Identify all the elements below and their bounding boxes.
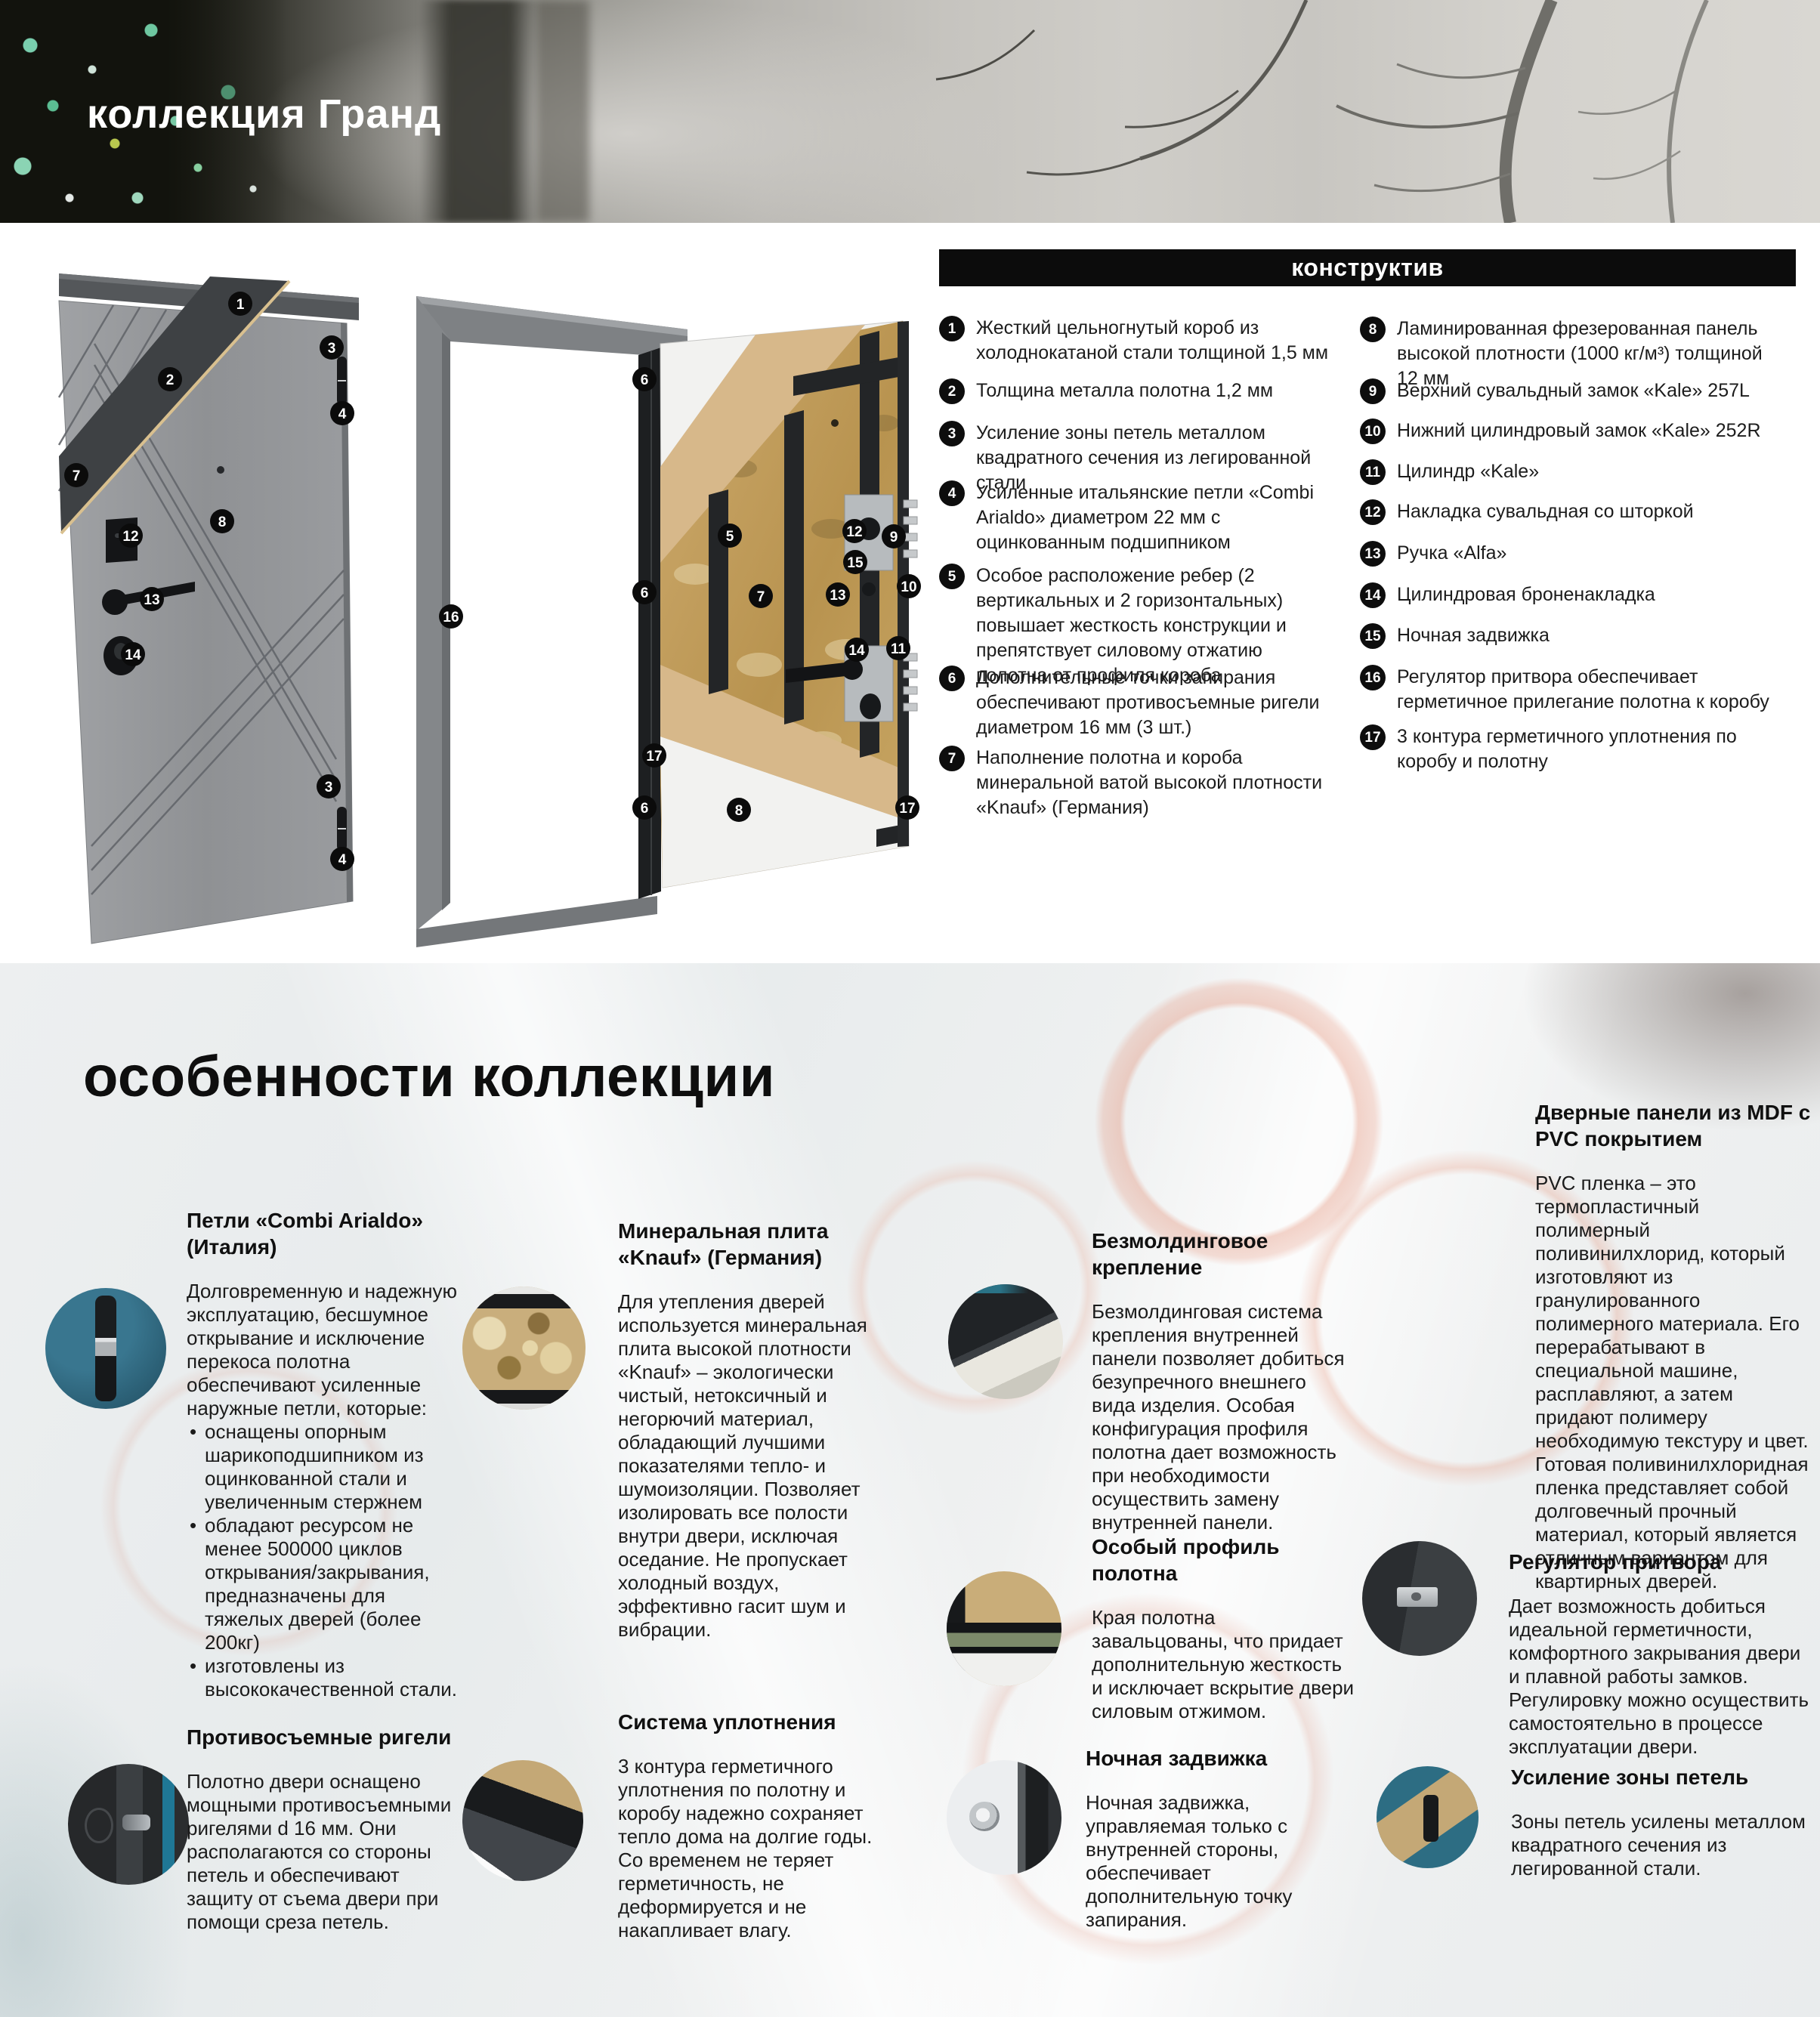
constructive-item: 7Наполнение полотна и короба минеральной…: [939, 746, 1336, 820]
diagram-marker: 11: [886, 636, 910, 660]
feature-block-mdf-pvc: Дверные панели из MDF с PVC покрытиемPVC…: [1535, 1099, 1816, 1593]
svg-text:9: 9: [890, 530, 898, 545]
feature-photo-leaf-profile: [947, 1571, 1061, 1686]
diagram-marker: 4: [330, 401, 354, 425]
feature-photo-anti-removal-bolt: [68, 1764, 189, 1885]
svg-text:7: 7: [757, 589, 765, 605]
feature-block-hinges: Петли «Combi Arialdo» (Италия)Долговреме…: [187, 1207, 459, 1701]
constructive-item: 1Жесткий цельногнутый короб из холоднока…: [939, 316, 1336, 366]
feature-block-moldingless: Безмолдинговое креплениеБезмолдинговая с…: [1092, 1228, 1355, 1534]
item-number-badge: 4: [939, 480, 965, 506]
svg-text:15: 15: [847, 555, 864, 571]
feature-title: Дверные панели из MDF с PVC покрытием: [1535, 1099, 1816, 1152]
svg-text:12: 12: [846, 524, 862, 540]
svg-text:12: 12: [122, 529, 138, 545]
item-number-badge: 2: [939, 378, 965, 404]
feature-block-rebate-adjuster: Регулятор притвораДает возможность добит…: [1509, 1549, 1811, 1759]
door-open-cutaway-view: [416, 296, 917, 947]
diagram-marker: 7: [749, 584, 773, 608]
feature-photo-hinge-zone: [1377, 1766, 1479, 1868]
constructive-item: 10Нижний цилиндровый замок «Kale» 252R: [1360, 419, 1783, 443]
diagram-marker: 6: [632, 367, 657, 391]
constructive-item: 11Цилиндр «Kale»: [1360, 459, 1783, 484]
feature-title: Регулятор притвора: [1509, 1549, 1811, 1575]
constructive-item: 4Усиленные итальянские петли «Combi Aria…: [939, 480, 1336, 555]
item-number-badge: 5: [939, 564, 965, 589]
svg-text:7: 7: [73, 468, 81, 484]
diagram-marker: 12: [119, 524, 143, 548]
svg-text:5: 5: [726, 529, 734, 545]
item-text: Ночная задвижка: [1397, 625, 1550, 646]
item-number-badge: 6: [939, 666, 965, 691]
item-text: Усиленные итальянские петли «Combi Arial…: [976, 482, 1314, 553]
feature-title: Система уплотнения: [618, 1709, 882, 1735]
feature-photo-rebate-adjuster: [1362, 1541, 1477, 1656]
feature-text: PVC пленка – это термопластичный полимер…: [1535, 1172, 1816, 1593]
diagram-marker: 16: [439, 604, 463, 629]
feature-title: Ночная задвижка: [1086, 1745, 1364, 1771]
item-text: Нижний цилиндровый замок «Kale» 252R: [1397, 420, 1761, 441]
item-text: Регулятор притвора обеспечивает герметич…: [1397, 666, 1769, 712]
svg-text:2: 2: [166, 372, 175, 388]
svg-text:8: 8: [218, 514, 227, 530]
diagram-marker: 7: [64, 463, 88, 487]
constructive-item: 6Дополнительные точки запирания обеспечи…: [939, 666, 1336, 740]
feature-block-leaf-profile: Особый профиль полотнаКрая полотна завал…: [1092, 1534, 1356, 1723]
svg-text:13: 13: [830, 588, 845, 604]
constructive-item: 2Толщина металла полотна 1,2 мм: [939, 378, 1336, 403]
diagram-marker: 6: [632, 795, 657, 820]
constructive-item: 15Ночная задвижка: [1360, 623, 1783, 648]
item-number-badge: 17: [1360, 724, 1386, 750]
feature-text: 3 контура герметичного уплотнения по пол…: [618, 1755, 882, 1942]
feature-block-night-latch: Ночная задвижкаНочная задвижка, управляе…: [1086, 1745, 1364, 1932]
svg-text:3: 3: [325, 780, 333, 795]
feature-photo-mineral-board: [462, 1286, 586, 1410]
item-number-badge: 9: [1360, 378, 1386, 404]
svg-text:6: 6: [641, 585, 649, 601]
svg-text:16: 16: [443, 610, 459, 625]
item-text: Дополнительные точки запирания обеспечив…: [976, 667, 1319, 738]
feature-block-hinge-zone: Усиление зоны петельЗоны петель усилены …: [1511, 1764, 1810, 1880]
item-number-badge: 1: [939, 316, 965, 341]
feature-block-sealing-system: Система уплотнения3 контура герметичного…: [618, 1709, 882, 1942]
feature-text: Зоны петель усилены металлом квадратного…: [1511, 1810, 1810, 1880]
diagram-marker: 17: [895, 795, 919, 820]
item-number-badge: 13: [1360, 541, 1386, 567]
feature-photo-hinge: [45, 1288, 166, 1409]
diagram-marker: 2: [158, 367, 182, 391]
feature-text: Полотно двери оснащено мощными противосъ…: [187, 1770, 459, 1934]
item-text: 3 контура герметичного уплотнения по кор…: [1397, 726, 1737, 772]
svg-text:10: 10: [901, 579, 916, 595]
constructive-item: 13Ручка «Alfa»: [1360, 541, 1783, 566]
feature-photo-moldingless-corner: [948, 1284, 1063, 1399]
door1-markers: 12347812131434: [64, 292, 354, 871]
svg-text:17: 17: [646, 749, 662, 764]
svg-text:3: 3: [328, 341, 336, 357]
item-text: Цилиндровая броненакладка: [1397, 584, 1655, 605]
item-text: Наполнение полотна и короба минеральной …: [976, 747, 1322, 818]
item-number-badge: 15: [1360, 623, 1386, 649]
feature-bullet: изготовлены из высококачественной стали.: [205, 1654, 459, 1701]
item-number-badge: 7: [939, 746, 965, 771]
item-number-badge: 10: [1360, 419, 1386, 444]
constructive-item: 16Регулятор притвора обеспечивает гермет…: [1360, 665, 1783, 715]
diagram-marker: 9: [882, 524, 906, 548]
door-front-view: [59, 273, 359, 944]
svg-text:4: 4: [338, 406, 347, 422]
svg-text:17: 17: [899, 801, 915, 817]
item-number-badge: 14: [1360, 582, 1386, 608]
svg-text:6: 6: [641, 372, 649, 388]
item-number-badge: 3: [939, 421, 965, 446]
svg-text:4: 4: [338, 852, 347, 868]
svg-text:6: 6: [641, 801, 649, 817]
svg-text:14: 14: [125, 647, 141, 663]
diagram-marker: 8: [727, 798, 751, 822]
svg-text:1: 1: [236, 297, 245, 313]
diagram-marker: 6: [632, 580, 657, 604]
diagram-marker: 10: [897, 574, 921, 598]
feature-title: Петли «Combi Arialdo» (Италия): [187, 1207, 459, 1260]
feature-bullet: оснащены опорным шарикоподшипником из оц…: [205, 1420, 459, 1514]
features-section-title: особенности коллекции: [83, 1044, 775, 1110]
diagram-marker: 1: [228, 292, 252, 316]
constructive-item: 12Накладка сувальдная со шторкой: [1360, 499, 1783, 524]
diagram-marker: 4: [330, 847, 354, 871]
svg-text:13: 13: [144, 592, 159, 608]
feature-text: Края полотна завальцованы, что придает д…: [1092, 1606, 1356, 1723]
diagram-marker: 14: [845, 638, 869, 662]
feature-photo-sealing: [462, 1760, 583, 1881]
feature-photo-night-latch: [947, 1760, 1061, 1875]
item-text: Цилиндр «Kale»: [1397, 461, 1539, 482]
feature-text: Дает возможность добиться идеальной герм…: [1509, 1595, 1811, 1759]
constructive-item: 9Верхний сувальдный замок «Kale» 257L: [1360, 378, 1783, 403]
catalog-page: коллекция Гранд: [0, 0, 1820, 2017]
diagram-marker: 13: [826, 582, 850, 607]
feature-text: Долговременную и надежную эксплуатацию, …: [187, 1280, 459, 1701]
diagram-marker: 3: [320, 335, 344, 360]
svg-text:14: 14: [848, 643, 865, 659]
item-text: Верхний сувальдный замок «Kale» 257L: [1397, 380, 1750, 401]
item-text: Накладка сувальдная со шторкой: [1397, 501, 1694, 522]
feature-text: Для утепления дверей используется минера…: [618, 1290, 884, 1642]
feature-bullet: обладают ресурсом не менее 500000 циклов…: [205, 1514, 459, 1654]
diagram-marker: 8: [210, 509, 234, 533]
item-number-badge: 11: [1360, 459, 1386, 485]
feature-block-mineral-board: Минеральная плита «Knauf» (Германия)Для …: [618, 1218, 884, 1642]
feature-text: Безмолдинговая система крепления внутрен…: [1092, 1300, 1355, 1534]
collection-title: коллекция Гранд: [87, 91, 441, 137]
svg-text:11: 11: [891, 641, 907, 657]
constructive-item: 14Цилиндровая броненакладка: [1360, 582, 1783, 607]
item-text: Жесткий цельногнутый короб из холоднокат…: [976, 317, 1328, 363]
tree-trunk-photo: [536, 0, 589, 223]
item-number-badge: 12: [1360, 499, 1386, 525]
item-number-badge: 8: [1360, 317, 1386, 342]
diagram-marker: 5: [718, 524, 742, 548]
feature-title: Минеральная плита «Knauf» (Германия): [618, 1218, 884, 1271]
feature-block-anti-removal-bolts: Противосъемные ригелиПолотно двери оснащ…: [187, 1724, 459, 1934]
feature-text: Ночная задвижка, управляемая только с вн…: [1086, 1791, 1364, 1932]
diagram-marker: 14: [121, 642, 145, 666]
door2-markers: 6665781291510131411161717: [439, 367, 921, 822]
feature-title: Особый профиль полотна: [1092, 1534, 1356, 1586]
constructive-item: 173 контура герметичного уплотнения по к…: [1360, 724, 1783, 774]
feature-title: Усиление зоны петель: [1511, 1764, 1810, 1790]
diagram-marker: 17: [642, 743, 666, 768]
diagram-marker: 15: [843, 550, 867, 574]
item-number-badge: 16: [1360, 665, 1386, 690]
item-text: Ручка «Alfa»: [1397, 542, 1506, 564]
feature-title: Безмолдинговое крепление: [1092, 1228, 1355, 1280]
diagram-marker: 13: [140, 587, 164, 611]
feature-title: Противосъемные ригели: [187, 1724, 459, 1750]
diagram-marker: 3: [317, 774, 341, 798]
item-text: Толщина металла полотна 1,2 мм: [976, 380, 1273, 401]
diagram-marker: 12: [842, 519, 867, 543]
svg-text:8: 8: [735, 803, 743, 819]
